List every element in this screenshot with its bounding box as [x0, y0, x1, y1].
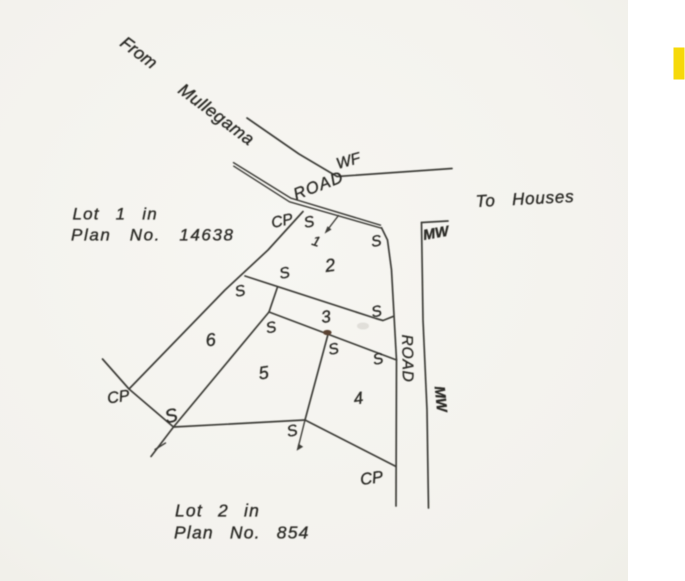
- svg-text:Lot 2 in: Lot 2 in: [175, 501, 260, 521]
- svg-text:Plan No. 854: Plan No. 854: [174, 523, 310, 543]
- svg-text:Lot 1 in: Lot 1 in: [73, 205, 158, 224]
- svg-text:Plan No. 14638: Plan No. 14638: [71, 226, 235, 245]
- svg-text:ROAD: ROAD: [398, 334, 416, 382]
- svg-text:CP: CP: [359, 468, 384, 489]
- svg-text:CP: CP: [106, 387, 131, 407]
- svg-text:MW: MW: [431, 385, 450, 414]
